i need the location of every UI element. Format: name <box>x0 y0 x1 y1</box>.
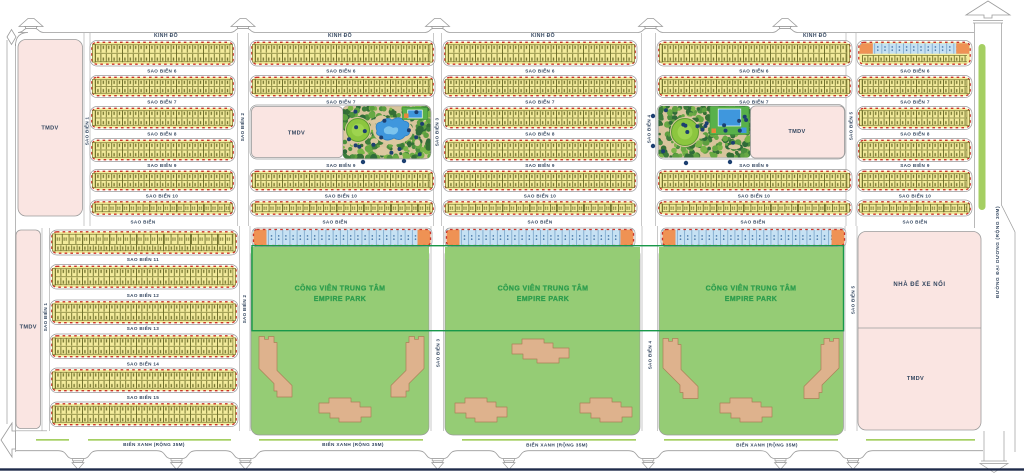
svg-text:SAO BIỂN 6: SAO BIỂN 6 <box>147 68 177 74</box>
svg-text:SAO BIỂN 2: SAO BIỂN 2 <box>241 295 247 324</box>
svg-text:SAO BIỂN 1: SAO BIỂN 1 <box>83 117 89 146</box>
svg-text:SAO BIỂN 6: SAO BIỂN 6 <box>525 68 555 74</box>
svg-text:SAO BIỂN 6: SAO BIỂN 6 <box>739 68 769 74</box>
svg-text:SAO BIỂN 6: SAO BIỂN 6 <box>900 68 930 74</box>
svg-text:SAO BIỂN 12: SAO BIỂN 12 <box>127 292 160 298</box>
svg-text:SAO BIỂN 14: SAO BIỂN 14 <box>127 360 160 366</box>
svg-text:SAO BIỂN 7: SAO BIỂN 7 <box>739 98 769 104</box>
svg-text:SAO BIỂN 9: SAO BIỂN 9 <box>739 162 769 168</box>
svg-text:SAO BIỂN 8: SAO BIỂN 8 <box>525 130 555 136</box>
svg-text:SAO BIỂN 10: SAO BIỂN 10 <box>524 192 557 198</box>
svg-text:CÔNG VIÊN TRUNG TÂM: CÔNG VIÊN TRUNG TÂM <box>706 283 797 292</box>
svg-text:SAO BIỂN 6: SAO BIỂN 6 <box>326 68 356 74</box>
svg-text:SAO BIỂN 8: SAO BIỂN 8 <box>147 130 177 136</box>
svg-text:SAO BIỂN 10: SAO BIỂN 10 <box>899 192 932 198</box>
svg-text:SAO BIỂN 10: SAO BIỂN 10 <box>146 192 179 198</box>
svg-text:SAO BIỂN 4: SAO BIỂN 4 <box>646 115 652 144</box>
svg-text:TMDV: TMDV <box>907 376 924 382</box>
svg-text:SAO BIỂN 9: SAO BIỂN 9 <box>147 162 177 168</box>
svg-text:EMPIRE PARK: EMPIRE PARK <box>517 296 570 303</box>
svg-text:SAO BIỂN 5: SAO BIỂN 5 <box>849 286 855 315</box>
svg-text:SAO BIỂN 10: SAO BIỂN 10 <box>738 192 771 198</box>
svg-text:SAO BIỂN 4: SAO BIỂN 4 <box>646 341 652 370</box>
svg-text:SAO BIỂN 7: SAO BIỂN 7 <box>900 98 930 104</box>
svg-text:SAO BIỂN 1: SAO BIỂN 1 <box>42 303 48 332</box>
svg-text:SAO BIỂN 10: SAO BIỂN 10 <box>325 192 358 198</box>
svg-text:SAO BIỂN 9: SAO BIỂN 9 <box>900 162 930 168</box>
svg-text:SAO BIỂN 3: SAO BIỂN 3 <box>434 339 440 368</box>
svg-text:SAO BIỂN 9: SAO BIỂN 9 <box>525 162 555 168</box>
svg-text:BIỂN XANH (RỘNG 35M): BIỂN XANH (RỘNG 35M) <box>322 440 384 447</box>
svg-text:KINH ĐÔ: KINH ĐÔ <box>803 31 827 39</box>
svg-text:CÔNG VIÊN TRUNG TÂM: CÔNG VIÊN TRUNG TÂM <box>295 283 386 292</box>
svg-text:SAO BIỂN 7: SAO BIỂN 7 <box>147 98 177 104</box>
svg-text:EMPIRE PARK: EMPIRE PARK <box>314 296 367 303</box>
svg-text:TMDV: TMDV <box>288 130 305 136</box>
svg-text:NHÀ ĐỂ XE NỔI: NHÀ ĐỂ XE NỔI <box>893 281 945 288</box>
svg-text:SAO BIỂN: SAO BIỂN <box>130 219 155 225</box>
svg-text:BIỂN XANH (RỘNG 35M): BIỂN XANH (RỘNG 35M) <box>526 441 588 448</box>
svg-text:SAO BIỂN 13: SAO BIỂN 13 <box>127 325 160 331</box>
svg-text:KINH ĐÔ: KINH ĐÔ <box>154 31 178 39</box>
svg-text:TMDV: TMDV <box>41 125 58 131</box>
svg-text:SAO BIỂN 7: SAO BIỂN 7 <box>525 98 555 104</box>
svg-text:SAO BIỂN 7: SAO BIỂN 7 <box>326 98 356 104</box>
svg-text:CÔNG VIÊN TRUNG TÂM: CÔNG VIÊN TRUNG TÂM <box>498 283 589 292</box>
svg-text:SAO BIỂN 9: SAO BIỂN 9 <box>326 162 356 168</box>
svg-text:EMPIRE PARK: EMPIRE PARK <box>725 296 778 303</box>
svg-text:TMDV: TMDV <box>788 129 805 135</box>
svg-text:SAO BIỂN 11: SAO BIỂN 11 <box>127 256 159 262</box>
svg-text:SAO BIỂN 8: SAO BIỂN 8 <box>900 130 930 136</box>
svg-text:KINH ĐÔ: KINH ĐÔ <box>531 31 555 39</box>
svg-text:BIỂN XANH (RỘNG 35M): BIỂN XANH (RỘNG 35M) <box>123 440 185 447</box>
svg-text:TMDV: TMDV <box>20 324 37 330</box>
svg-text:SAO BIỂN 5: SAO BIỂN 5 <box>847 112 853 141</box>
svg-text:SAO BIỂN: SAO BIỂN <box>740 219 765 225</box>
svg-text:SAO BIỂN: SAO BIỂN <box>527 219 552 225</box>
svg-text:SAO BIỂN 2: SAO BIỂN 2 <box>239 113 245 142</box>
svg-text:SAO BIỂN 15: SAO BIỂN 15 <box>127 394 160 400</box>
svg-text:BIỂN XANH (RỘNG 35M): BIỂN XANH (RỘNG 35M) <box>736 441 798 448</box>
svg-text:KINH ĐÔ: KINH ĐÔ <box>328 31 352 39</box>
svg-text:SAO BIỂN: SAO BIỂN <box>322 219 347 225</box>
svg-text:SAO BIỂN: SAO BIỂN <box>902 219 927 225</box>
svg-text:SAO BIỂN 3: SAO BIỂN 3 <box>434 118 440 147</box>
